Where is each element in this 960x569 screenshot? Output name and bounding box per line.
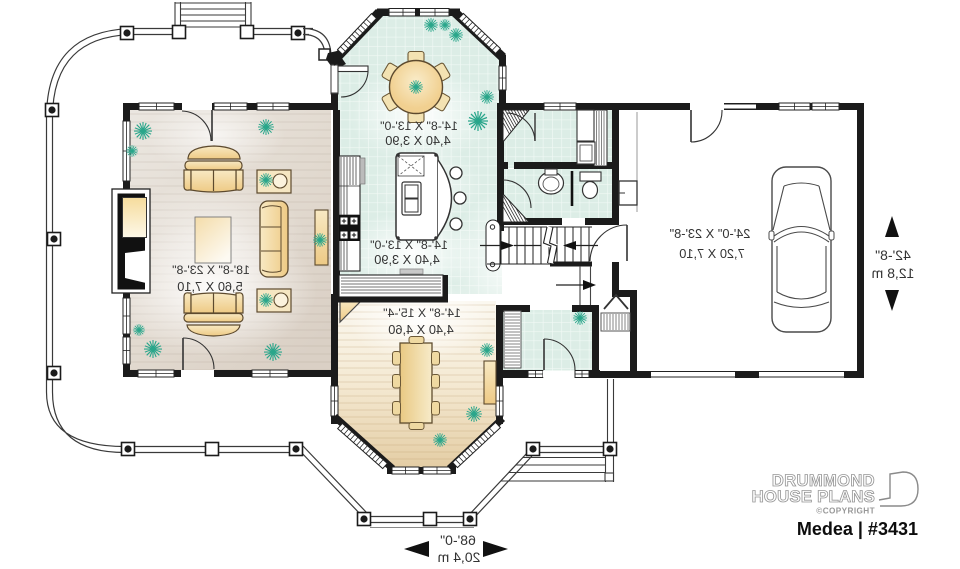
svg-text:42'-8": 42'-8" xyxy=(875,247,911,263)
svg-text:HOUSE PLANS: HOUSE PLANS xyxy=(752,487,875,506)
svg-text:Medea | #3431: Medea | #3431 xyxy=(797,519,918,539)
svg-text:14'-8" X 15'-4": 14'-8" X 15'-4" xyxy=(383,306,461,320)
svg-text:18'-8" X 23'-8": 18'-8" X 23'-8" xyxy=(172,263,250,277)
svg-text:4,40 X 3,90: 4,40 X 3,90 xyxy=(374,252,439,267)
svg-text:7,20 X 7,10: 7,20 X 7,10 xyxy=(679,246,744,261)
svg-text:4,40 X 3,90: 4,40 X 3,90 xyxy=(385,133,450,148)
svg-text:24'-0" X 23'-8": 24'-0" X 23'-8" xyxy=(670,226,751,241)
svg-text:20,4 m: 20,4 m xyxy=(438,549,481,565)
svg-text:14'-8" X 13'-0": 14'-8" X 13'-0" xyxy=(370,238,448,252)
svg-text:4,40 X 4,60: 4,40 X 4,60 xyxy=(388,322,453,337)
svg-text:©COPYRIGHT: ©COPYRIGHT xyxy=(816,507,875,516)
svg-text:14'-8" X 13'-0": 14'-8" X 13'-0" xyxy=(380,119,458,133)
svg-text:5,60 X 7,10: 5,60 X 7,10 xyxy=(177,279,242,294)
svg-text:68'-0": 68'-0" xyxy=(440,532,476,548)
svg-text:12,8 m: 12,8 m xyxy=(872,265,915,281)
